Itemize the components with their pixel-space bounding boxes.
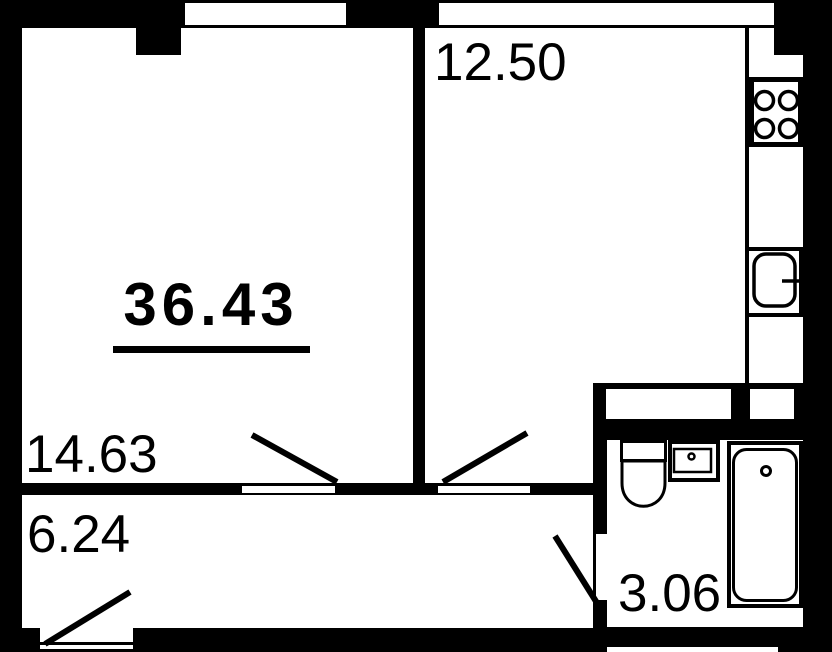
burner-icon xyxy=(756,120,774,138)
toilet-tank xyxy=(622,442,666,461)
kitchen-sink-icon xyxy=(745,247,803,317)
toilet-icon xyxy=(622,442,666,507)
area-labels: 36.43 14.63 12.50 6.24 3.06 xyxy=(25,33,721,623)
counter-edge-line xyxy=(745,28,749,383)
kitchen-counter xyxy=(745,28,803,383)
right-wall-jut xyxy=(774,28,803,55)
total-area-label: 36.43 xyxy=(123,271,298,338)
floor-plan-drawing: 36.43 14.63 12.50 6.24 3.06 xyxy=(0,0,832,652)
bathroom-threshold-line xyxy=(593,534,596,600)
window-kitchen xyxy=(439,3,774,25)
bathtub-drain xyxy=(762,467,771,476)
burner-icon xyxy=(780,92,798,110)
vent-shaft-1 xyxy=(606,389,731,419)
stove-icon xyxy=(749,77,803,147)
toilet-bowl xyxy=(622,461,665,506)
bathroom-left-wall xyxy=(593,383,607,652)
living-room-door-leaf xyxy=(252,435,337,482)
entry-threshold-line-1 xyxy=(40,642,133,645)
vent-shaft-2 xyxy=(750,389,794,419)
vent-shafts xyxy=(606,389,794,419)
washbasin-icon xyxy=(670,442,718,480)
partition-living-kitchen xyxy=(413,28,425,483)
bathroom-door-leaf xyxy=(555,536,597,603)
bottom-right-corner xyxy=(778,627,832,652)
pilaster xyxy=(136,28,181,55)
washbasin-drain xyxy=(689,454,695,460)
burner-icon xyxy=(780,120,798,138)
burner-icon xyxy=(756,92,774,110)
living-room-area-label: 14.63 xyxy=(25,425,158,484)
total-area-underline xyxy=(113,346,310,353)
bathroom-area-label: 3.06 xyxy=(618,564,721,623)
kitchen-door-leaf xyxy=(443,433,527,482)
hallway-area-label: 6.24 xyxy=(27,505,130,564)
living-room-door-opening xyxy=(242,486,335,493)
right-wall xyxy=(803,0,832,652)
window-living-room xyxy=(185,3,346,25)
windows xyxy=(185,3,774,25)
floor-plan: 36.43 14.63 12.50 6.24 3.06 xyxy=(0,0,832,652)
kitchen-area-label: 12.50 xyxy=(434,33,567,92)
bathtub-icon xyxy=(729,443,801,606)
kitchen-door-opening xyxy=(438,486,530,493)
left-wall xyxy=(0,0,22,652)
